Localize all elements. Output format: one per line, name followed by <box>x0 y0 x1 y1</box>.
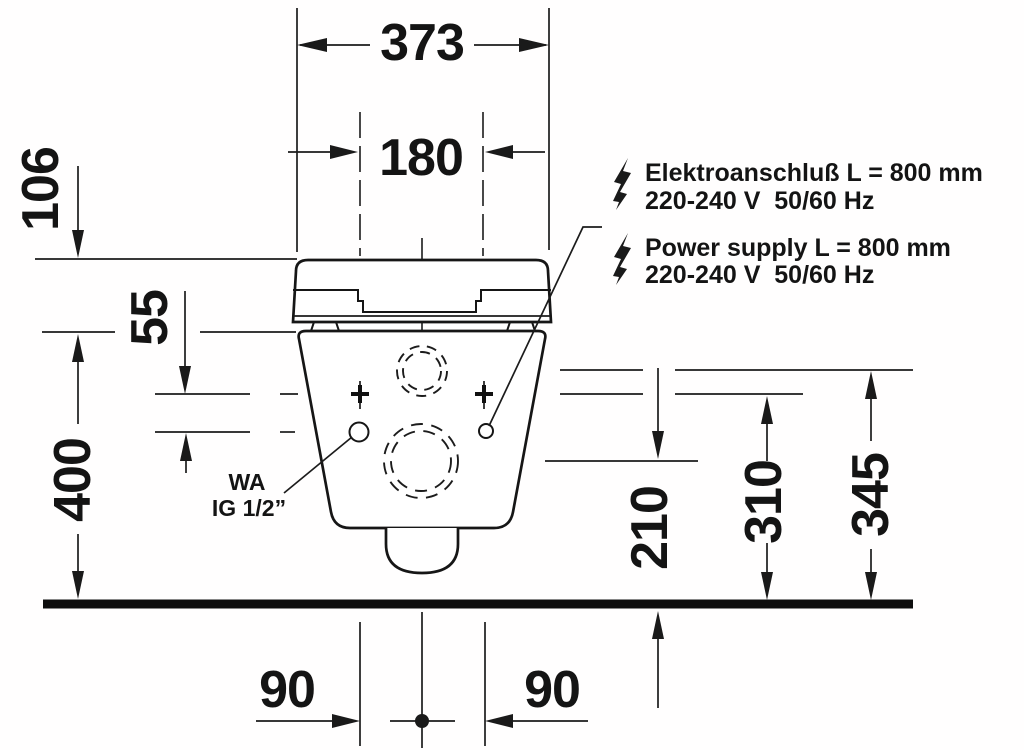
wa-label-line2: IG 1/2” <box>212 495 286 521</box>
dim-400-label: 400 <box>44 438 102 522</box>
dim-55-label: 55 <box>121 290 179 346</box>
wc-dimension-drawing: 373 180 106 55 400 210 <box>0 0 1024 750</box>
dim-210-label: 210 <box>621 486 679 570</box>
dim-373-label: 373 <box>380 14 464 72</box>
toilet-seat-lid <box>293 260 551 331</box>
dimension-180: 180 <box>288 129 545 187</box>
body-outline <box>299 331 546 528</box>
electro-de-line2: 220-240 V 50/60 Hz <box>645 187 874 215</box>
dimension-400: 400 <box>44 334 102 599</box>
technical-drawing-page: 373 180 106 55 400 210 <box>0 0 1024 750</box>
toilet-body <box>299 331 546 573</box>
dim-106-label: 106 <box>12 147 70 231</box>
lightning-bolt-icon <box>613 233 631 285</box>
wa-label-line1: WA <box>228 469 265 495</box>
electro-de-line1: Elektroanschluß L = 800 mm <box>645 159 983 187</box>
dimension-90-right: 90 <box>485 622 588 746</box>
dimension-345: 345 <box>842 371 900 600</box>
power-en-line2: 220-240 V 50/60 Hz <box>645 261 874 289</box>
power-en-line1: Power supply L = 800 mm <box>645 234 951 262</box>
centre-point-dot <box>415 714 429 728</box>
dim-310-label: 310 <box>735 460 793 544</box>
outlet-bowl <box>386 528 458 573</box>
dimension-55: 55 <box>121 290 192 473</box>
dim-180-label: 180 <box>379 129 463 187</box>
dimension-210: 210 <box>621 368 679 708</box>
dim-90-left-label: 90 <box>259 661 315 719</box>
electrical-annotation: Elektroanschluß L = 800 mm 220-240 V 50/… <box>489 158 983 426</box>
bottom-centre-mark <box>390 612 455 748</box>
dimension-310: 310 <box>735 396 793 600</box>
lightning-bolt-icon <box>613 158 631 210</box>
dimension-90-left: 90 <box>256 622 360 746</box>
dim-90-right-label: 90 <box>524 661 580 719</box>
dim-345-label: 345 <box>842 453 900 537</box>
dimension-106: 106 <box>12 147 84 258</box>
